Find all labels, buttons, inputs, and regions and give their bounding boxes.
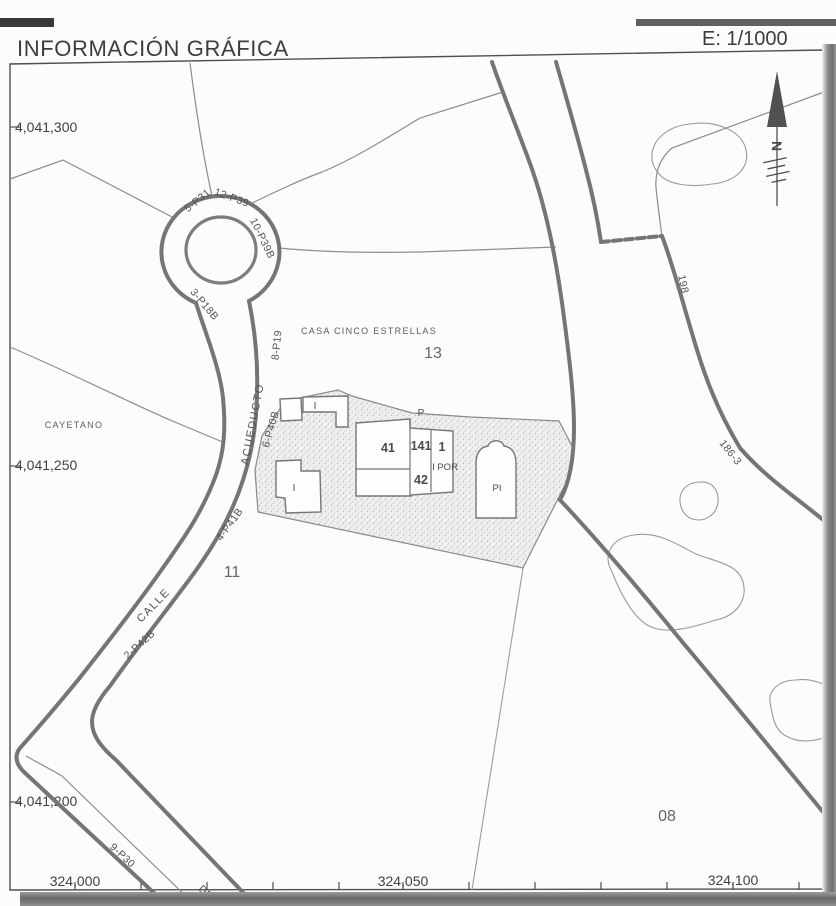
road-calle-acueducto	[17, 196, 280, 906]
scale-label: E: 1/1000	[702, 28, 788, 50]
building-main	[356, 419, 453, 496]
scan-edge-bottom	[20, 892, 836, 906]
north-arrow-head	[767, 71, 787, 127]
scan-edge-right	[822, 44, 836, 906]
north-arrow-n: N	[769, 141, 785, 151]
blob-large	[608, 534, 744, 630]
boundary-parcel-08-west	[472, 568, 523, 890]
page-title: INFORMACIÓN GRÁFICA	[17, 36, 289, 61]
parcel-label-11: 11	[224, 564, 241, 581]
boundary-cayetano-south	[10, 347, 225, 443]
parcel-label-08: 08	[658, 808, 676, 825]
blob-small-circle	[680, 482, 718, 520]
boundary-northeast-1	[250, 92, 503, 204]
parcel-labels: CASA CINCO ESTRELLAS 13 CAYETANO 11 08 1…	[45, 274, 744, 825]
scan-mark-top-left	[0, 18, 54, 27]
road-inner-edge	[92, 301, 257, 906]
street-code-12-p39: 12-P39	[213, 186, 251, 210]
cadastral-map-page: INFORMACIÓN GRÁFICA E: 1/1000 4,041,300 …	[0, 0, 836, 906]
x-coord-label-1: 324,000	[50, 873, 101, 889]
building-pi	[476, 441, 516, 518]
x-coord-label-3: 324,100	[708, 872, 759, 888]
parcel-label-13: 13	[424, 345, 442, 362]
building-label-p: P	[418, 408, 425, 419]
road-loop-island	[186, 217, 256, 283]
street-code-3-p18b: 3-P18B	[188, 286, 221, 322]
parcel-label-cayetano: CAYETANO	[45, 420, 104, 430]
street-code-8-p19: 8-P19	[269, 330, 284, 361]
cadastral-map-svg: INFORMACIÓN GRÁFICA E: 1/1000 4,041,300 …	[0, 0, 836, 906]
corridor-east-edge	[556, 62, 601, 242]
building-label-i-upper: I	[314, 401, 317, 412]
building-label-41: 41	[381, 441, 395, 455]
building-label-141: 141	[411, 439, 432, 453]
x-coord-label-2: 324,050	[378, 873, 429, 889]
boundary-top-right	[656, 92, 824, 236]
street-code-2-p42b: 2-P42B	[122, 628, 158, 662]
building-label-por: I POR	[432, 462, 458, 473]
boundary-northeast-2	[279, 247, 556, 252]
building-small-west	[280, 398, 302, 421]
building-label-pi: PI	[493, 483, 502, 494]
street-code-5-p31: 5-P31	[182, 187, 213, 215]
scan-mark-top-right	[636, 19, 836, 26]
building-label-1: 1	[439, 440, 446, 454]
terrain-blobs	[608, 123, 836, 741]
y-coord-label-1: 4,041,300	[15, 119, 77, 135]
parcel-label-186-3: 186-3	[717, 438, 744, 468]
street-name-calle: CALLE	[135, 586, 173, 625]
boundary-top-left	[190, 63, 212, 196]
building-label-42: 42	[414, 473, 428, 487]
road-outer-edge	[17, 303, 225, 906]
y-coord-label-2: 4,041,250	[15, 457, 77, 473]
parcel-label-198: 198	[675, 274, 691, 295]
boundary-zigzag-west	[10, 160, 174, 218]
building-label-i-lower: I	[293, 483, 296, 494]
parcel-label-casa-cinco-estrellas: CASA CINCO ESTRELLAS	[301, 326, 437, 336]
corridor-dashed-segment	[601, 236, 662, 242]
north-arrow-icon: N	[763, 71, 791, 206]
map-header: INFORMACIÓN GRÁFICA E: 1/1000	[17, 28, 788, 61]
